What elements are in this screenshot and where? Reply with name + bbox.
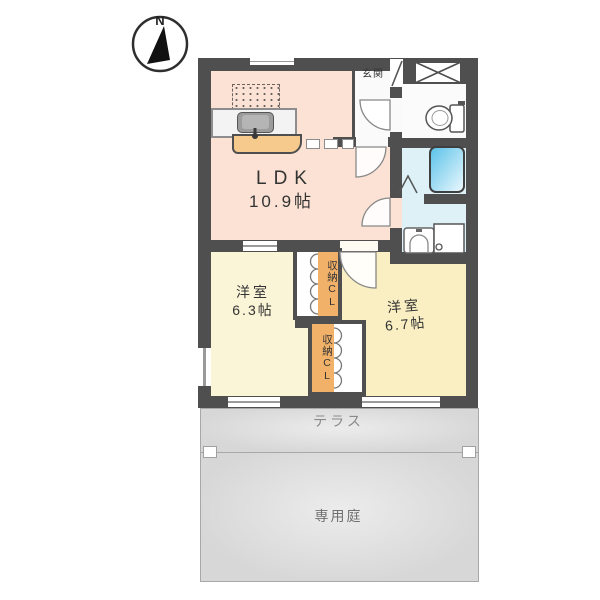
- toilet-door-gap: [390, 98, 402, 132]
- bedroom-left-label: 洋室 6.3帖: [211, 284, 295, 319]
- window-kitchen-vent: [250, 58, 294, 65]
- closet-upper-door-area: [297, 252, 318, 316]
- compass-north-label: N: [151, 13, 169, 29]
- bedroom-left-name: 洋室: [211, 284, 295, 302]
- window-bedroom-left-side: [198, 348, 211, 386]
- closet-upper-label: 収納CL: [318, 253, 338, 316]
- counter-dash-3: [342, 139, 354, 149]
- kitchen-sink-inner: [242, 115, 269, 129]
- window-bedroom-left: [228, 397, 280, 407]
- ldk-area: 10.9帖: [211, 191, 352, 212]
- ldk-label: LDK 10.9帖: [211, 167, 352, 212]
- closet-lower-label: 収納CL: [313, 325, 333, 391]
- bedroom-left-area: 6.3帖: [211, 302, 295, 320]
- washroom-south-wall: [390, 252, 466, 264]
- bathroom-door-gap: [402, 194, 424, 204]
- floor-plan-canvas: N 玄関 LDK 10.9帖 洋室 6.3帖 洋室 6.7帖 収納CL 収納CL…: [0, 0, 600, 600]
- terrace-label: テラス: [200, 413, 477, 431]
- kitchen-counter-base: [232, 134, 302, 154]
- fence-notch-right: [462, 446, 476, 458]
- stove-hatch-icon: [232, 84, 280, 110]
- toilet-floor: [402, 84, 466, 138]
- bedroom-left-door-gap: [243, 241, 277, 251]
- hall-door-gap: [356, 137, 388, 147]
- garden-label: 専用庭: [200, 508, 477, 526]
- bathroom-floor: [402, 148, 466, 194]
- washroom-door-gap: [390, 198, 402, 228]
- fence-notch-left: [203, 446, 217, 458]
- window-bedroom-right: [362, 397, 440, 407]
- bedroom-left-floor: [211, 252, 295, 396]
- ldk-name: LDK: [211, 167, 352, 191]
- ldk-floor-east: [352, 147, 390, 240]
- washroom-floor: [402, 204, 466, 252]
- entrance-label: 玄関: [353, 69, 393, 82]
- shoe-box-icon: [414, 61, 462, 84]
- counter-dash-2: [324, 139, 338, 149]
- bedroom-right-door-gap: [340, 241, 378, 251]
- counter-dash-1: [306, 139, 320, 149]
